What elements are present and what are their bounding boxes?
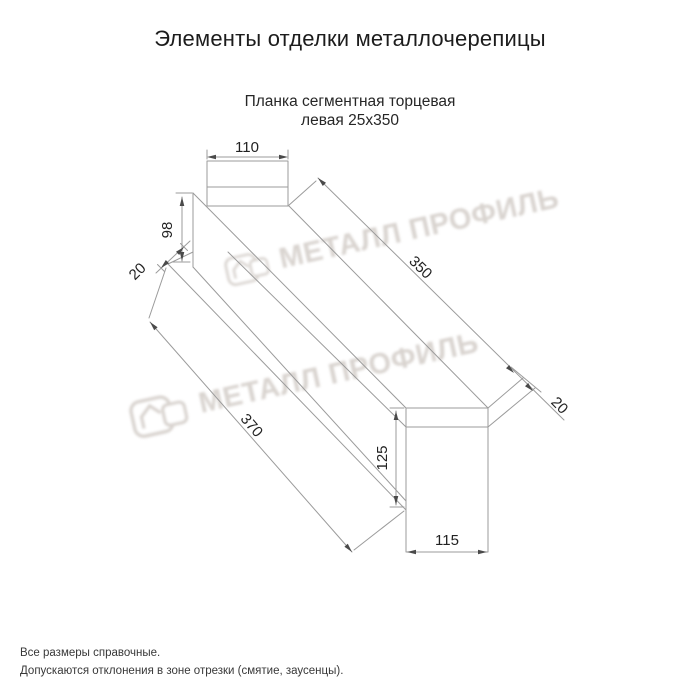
dim-top-flange-width: 110 — [207, 139, 288, 159]
end-face-outline — [406, 408, 488, 552]
product-drawing-page: Элементы отделки металлочерепицы Планка … — [0, 0, 700, 700]
dim-98-label: 98 — [159, 222, 176, 239]
footnote-line1: Все размеры справочные. — [20, 645, 660, 663]
top-flange-outline — [207, 161, 288, 206]
strip-body-edges — [168, 193, 488, 510]
footnotes: Все размеры справочные. Допускаются откл… — [20, 645, 660, 680]
dim-125-label: 125 — [374, 445, 391, 470]
dim-left-end-height: 98 — [159, 193, 192, 262]
footnote-line2: Допускаются отклонения в зоне отрезки (с… — [20, 663, 660, 681]
dim-370-label: 370 — [237, 411, 266, 441]
technical-drawing: 110 98 20 350 20 — [0, 0, 700, 700]
dim-350-label: 350 — [405, 253, 435, 283]
dim-115-label: 115 — [435, 532, 459, 549]
dim-bottom-edge-length: 370 — [149, 268, 404, 552]
dim-110-label: 110 — [235, 139, 259, 156]
dim-20-left-label: 20 — [126, 260, 150, 284]
dim-top-edge-length: 350 20 — [288, 178, 571, 420]
dim-end-face-width: 115 — [407, 532, 487, 554]
dim-20-right-label: 20 — [547, 394, 571, 418]
